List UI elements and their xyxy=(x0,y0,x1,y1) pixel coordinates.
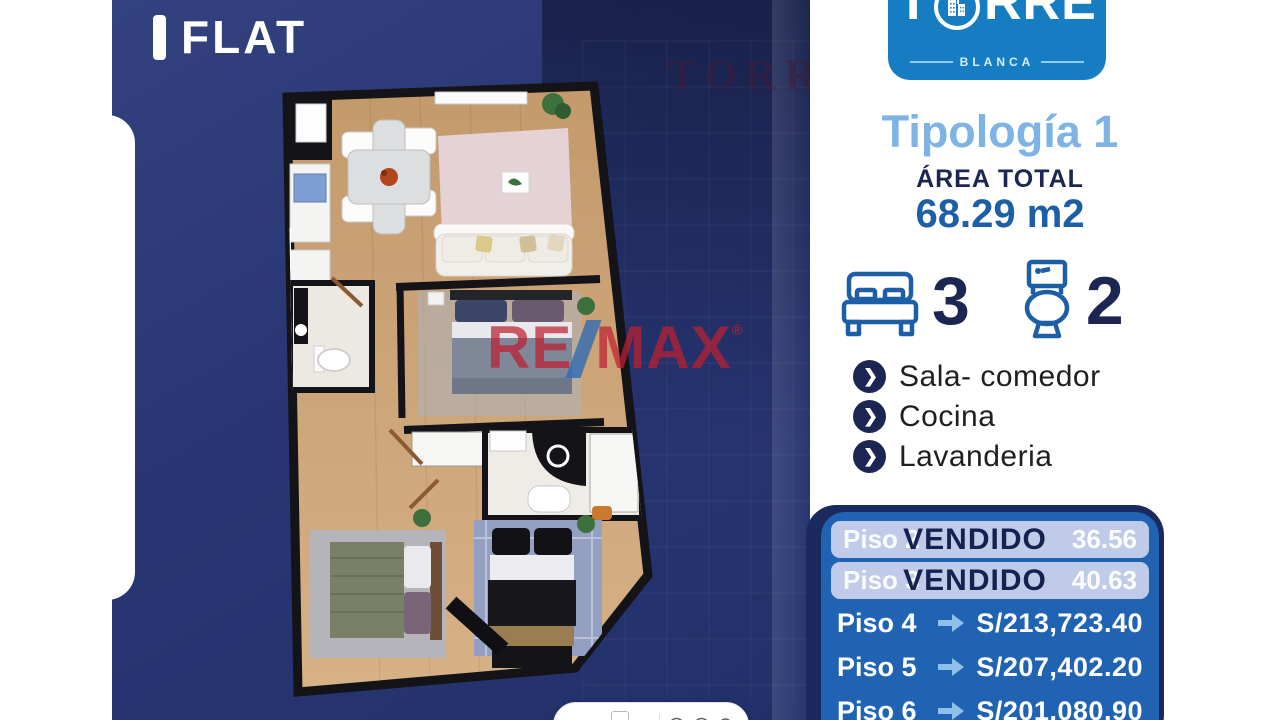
feature-row: ❯ Sala- comedor xyxy=(853,360,1101,393)
torre-watermark: TORRE xyxy=(668,52,810,100)
building-circle-icon xyxy=(934,0,980,30)
logo-subtitle-row: BLANCA xyxy=(910,55,1084,69)
feature-label: Sala- comedor xyxy=(899,360,1101,394)
floor-label: Piso 6 xyxy=(837,696,926,720)
sold-row-piso-3: Piso 3 VENDIDO 40.63 xyxy=(831,562,1149,599)
magnifier-icon[interactable] xyxy=(718,717,735,720)
logo-subtitle: BLANCA xyxy=(960,55,1035,69)
remax-max: MAX xyxy=(595,320,731,376)
price-value: S/213,723.40 xyxy=(976,608,1143,639)
flat-title-label: FLAT xyxy=(181,10,307,64)
arrow-right-icon xyxy=(936,613,966,633)
area-total-label: ÁREA TOTAL xyxy=(810,165,1190,194)
bed-icon xyxy=(840,270,920,340)
sold-row-piso-2: Piso 2 VENDIDO 36.56 xyxy=(831,521,1149,558)
sold-badge: VENDIDO xyxy=(831,523,1119,557)
left-white-notch xyxy=(0,115,135,600)
toilet-icon xyxy=(1020,258,1074,340)
sofa xyxy=(434,224,574,276)
price-row-piso-4: Piso 4 S/213,723.40 xyxy=(831,603,1149,643)
chevron-right-icon: ❯ xyxy=(853,400,886,433)
logo-letter-t: T xyxy=(897,0,930,32)
features-list: ❯ Sala- comedor ❯ Cocina ❯ Lavanderia xyxy=(853,360,1101,473)
toolbar-divider xyxy=(659,714,660,720)
stats-row: 3 2 xyxy=(840,258,1140,340)
registered-mark: ® xyxy=(732,322,743,339)
chevron-right-icon: ❯ xyxy=(853,360,886,393)
torre-blanca-logo: TRRE BLANCA xyxy=(888,0,1106,80)
area-total-value: 68.29 m2 xyxy=(810,192,1190,237)
arrow-right-icon xyxy=(936,701,966,720)
price-value: S/201,080.90 xyxy=(976,696,1143,720)
remax-watermark: RE MAX ® xyxy=(487,320,743,378)
screenshot-stage: TORRE FLAT xyxy=(0,0,1280,720)
logo-line-left xyxy=(910,61,953,63)
bedrooms-count: 3 xyxy=(932,262,970,340)
building-edge-highlight xyxy=(772,0,810,720)
page-number-input[interactable]: 4 xyxy=(611,711,629,720)
logo-wordmark: TRRE xyxy=(888,0,1106,32)
price-box-inner: Piso 2 VENDIDO 36.56 Piso 3 VENDIDO 40.6… xyxy=(821,512,1159,720)
feature-row: ❯ Lavanderia xyxy=(853,440,1101,473)
price-row-piso-5: Piso 5 S/207,402.20 xyxy=(831,647,1149,687)
typology-title: Tipología 1 xyxy=(810,106,1190,158)
logo-line-right xyxy=(1041,61,1084,63)
feature-label: Lavanderia xyxy=(899,440,1052,474)
floor-label: Piso 5 xyxy=(837,652,926,683)
price-box: Piso 2 VENDIDO 36.56 Piso 3 VENDIDO 40.6… xyxy=(806,505,1164,720)
bathroom-2 xyxy=(485,428,642,518)
zoom-in-icon[interactable] xyxy=(693,717,710,720)
remax-re: RE xyxy=(487,320,572,376)
bathrooms-count: 2 xyxy=(1086,262,1124,340)
arrow-right-icon xyxy=(936,657,966,677)
floor-plan xyxy=(270,78,670,703)
viewer-toolbar: 4 / 6 xyxy=(553,702,749,720)
zoom-out-icon[interactable] xyxy=(668,717,685,720)
sold-badge: VENDIDO xyxy=(831,564,1119,598)
price-value: S/207,402.20 xyxy=(976,652,1143,683)
flat-title-bar xyxy=(153,15,166,60)
floor-label: Piso 4 xyxy=(837,608,926,639)
feature-label: Cocina xyxy=(899,400,995,434)
logo-letters-rre: RRE xyxy=(984,0,1097,32)
bedroom-2 xyxy=(310,509,446,658)
price-row-piso-6: Piso 6 S/201,080.90 xyxy=(831,691,1149,720)
flat-title: FLAT xyxy=(153,10,307,64)
feature-row: ❯ Cocina xyxy=(853,400,1101,433)
chevron-right-icon: ❯ xyxy=(853,440,886,473)
